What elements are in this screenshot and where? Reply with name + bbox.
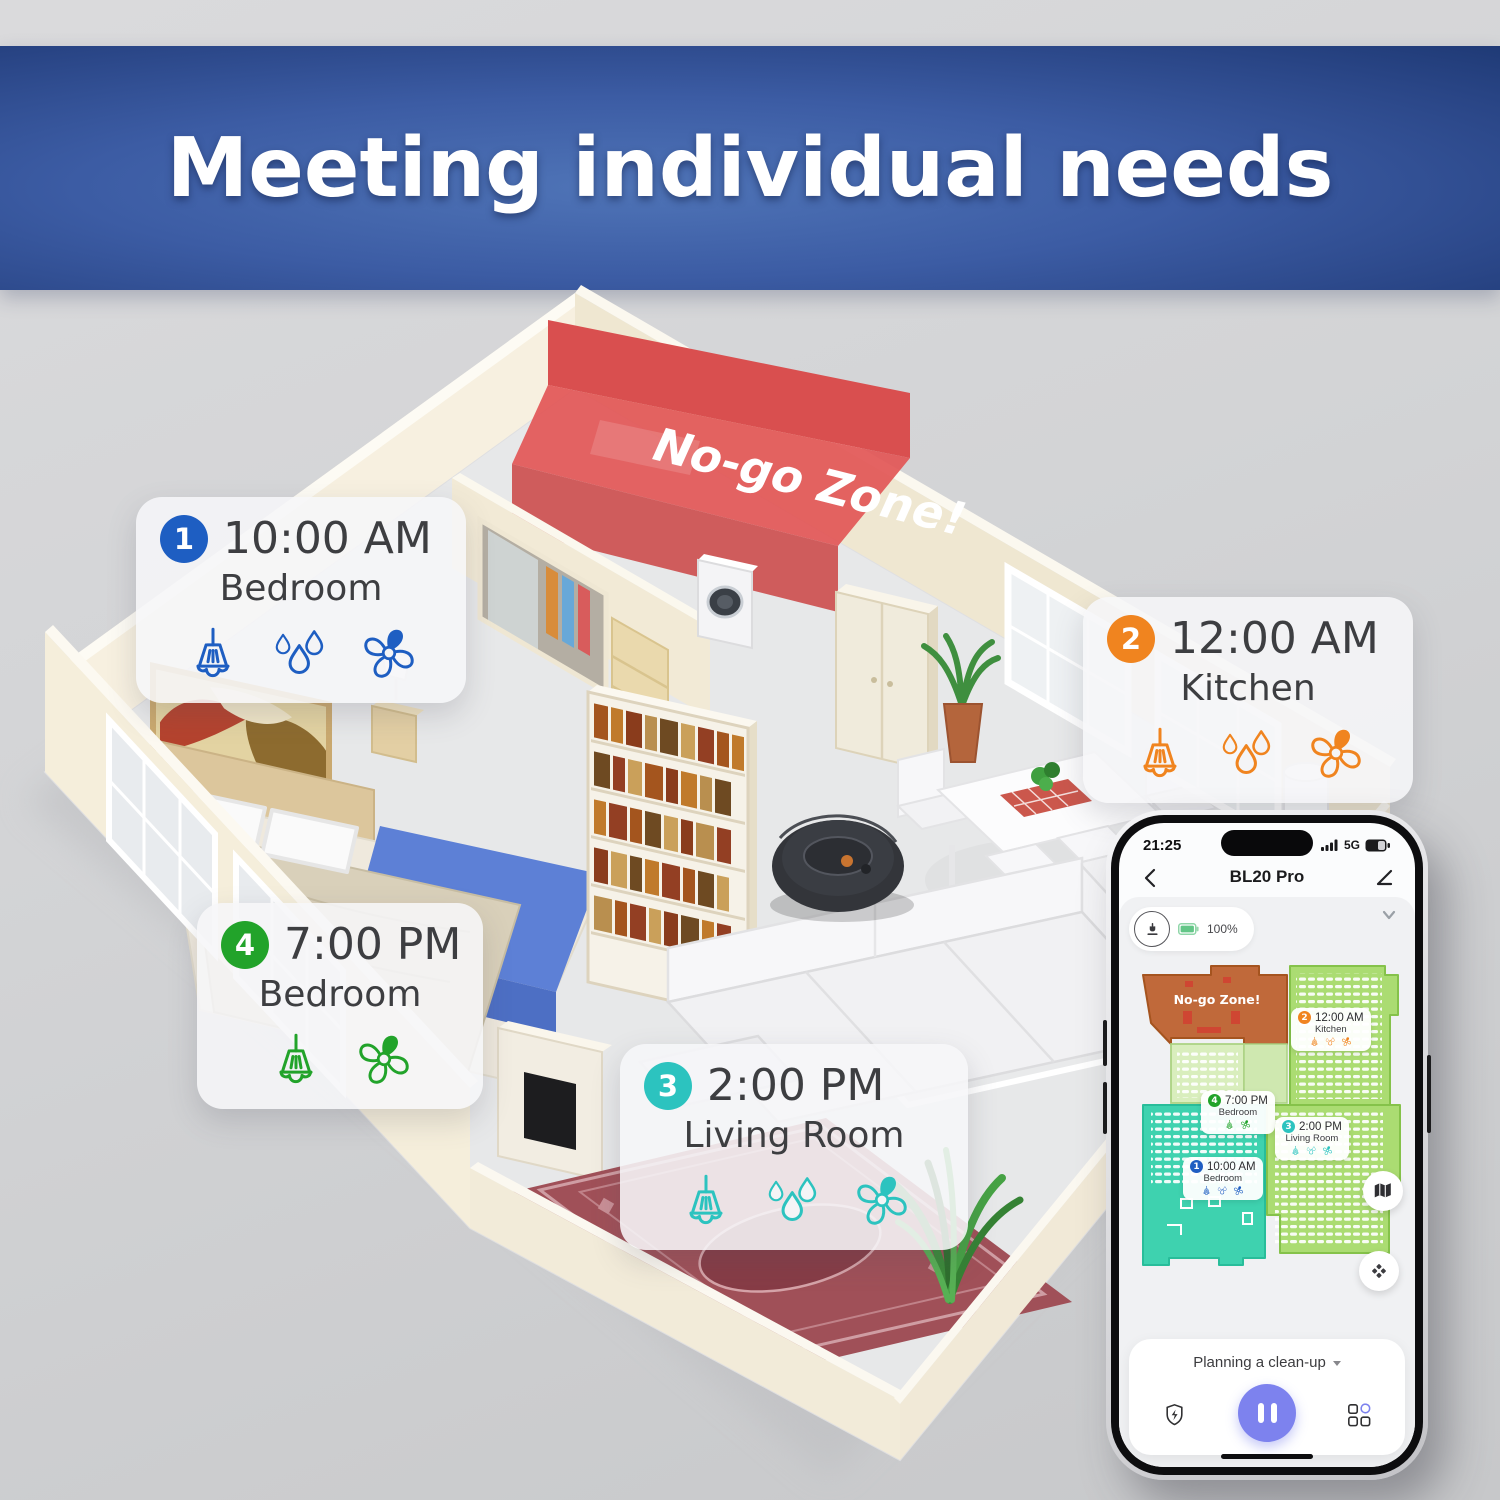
schedule-time: 2:00 PM — [707, 1060, 884, 1111]
map-label-bedroom-evening: 4 7:00 PM Bedroom — [1201, 1091, 1275, 1134]
water-drops-icon — [764, 1170, 824, 1230]
schedule-callout-1: 1 10:00 AM Bedroom — [136, 497, 466, 703]
battery-level-icon — [1178, 923, 1199, 935]
map-label-living-room: 3 2:00 PM Living Room — [1275, 1117, 1349, 1160]
shield-icon[interactable] — [1161, 1402, 1188, 1429]
cleaning-status-label: Planning a clean-up — [1193, 1354, 1326, 1371]
map-label-number: 1 — [1190, 1160, 1203, 1173]
schedule-number-badge: 4 — [221, 921, 269, 969]
broom-icon — [1201, 1185, 1212, 1196]
phone-screen: 21:25 5G — [1119, 823, 1415, 1467]
fan-icon — [852, 1170, 912, 1230]
fan-icon — [1240, 1119, 1251, 1130]
schedule-room: Bedroom — [160, 568, 442, 609]
map-view-button[interactable] — [1363, 1171, 1403, 1211]
schedule-room: Kitchen — [1107, 668, 1389, 709]
pause-icon — [1271, 1403, 1277, 1423]
water-drops-icon — [1325, 1036, 1336, 1047]
volume-down-button — [1103, 1082, 1107, 1134]
map-label-room: Bedroom — [1190, 1173, 1256, 1184]
app-header: BL20 Pro — [1119, 863, 1415, 893]
map-no-go-room: No-go Zone! — [1143, 966, 1287, 1044]
schedule-number-badge: 1 — [160, 515, 208, 563]
room-select-button[interactable] — [1359, 1251, 1399, 1291]
caret-down-icon — [1333, 1361, 1341, 1366]
dynamic-island — [1221, 830, 1313, 856]
schedule-time: 7:00 PM — [284, 919, 461, 970]
schedule-number-badge: 3 — [644, 1062, 692, 1110]
power-button — [1427, 1055, 1431, 1133]
broom-icon — [1224, 1119, 1235, 1130]
robot-avatar-icon — [1134, 911, 1170, 947]
fan-icon — [1322, 1145, 1333, 1156]
schedule-callout-4: 4 7:00 PM Bedroom — [197, 903, 483, 1109]
map-label-time: 12:00 AM — [1315, 1012, 1364, 1024]
signal-bars-icon — [1321, 839, 1339, 851]
schedule-callout-2: 2 12:00 AM Kitchen — [1083, 597, 1413, 803]
fan-icon — [1341, 1036, 1352, 1047]
battery-icon — [1365, 839, 1391, 852]
control-panel: Planning a clean-up — [1129, 1339, 1405, 1455]
water-drops-icon — [271, 623, 331, 683]
map-area[interactable]: No-go Zone! — [1127, 953, 1407, 1343]
map-label-number: 4 — [1208, 1094, 1221, 1107]
schedule-room: Living Room — [644, 1115, 944, 1156]
map-label-number: 2 — [1298, 1011, 1311, 1024]
broom-icon — [1130, 723, 1190, 783]
volume-up-button — [1103, 1020, 1107, 1066]
fireplace — [498, 1021, 612, 1180]
battery-percent: 100% — [1207, 922, 1238, 936]
map-label-time: 10:00 AM — [1207, 1161, 1256, 1173]
schedule-room: Bedroom — [221, 974, 459, 1015]
broom-icon — [266, 1029, 326, 1089]
cleaning-status-dropdown[interactable]: Planning a clean-up — [1129, 1339, 1405, 1371]
map-label-room: Kitchen — [1298, 1024, 1364, 1035]
fan-icon — [354, 1029, 414, 1089]
broom-icon — [676, 1170, 736, 1230]
water-drops-icon — [1306, 1145, 1317, 1156]
washing-machine — [698, 554, 758, 648]
map-label-kitchen: 2 12:00 AM Kitchen — [1291, 1008, 1371, 1051]
schedule-time: 12:00 AM — [1170, 613, 1379, 664]
app-content: 100% — [1119, 897, 1415, 1467]
water-drops-icon — [1217, 1185, 1228, 1196]
water-drops-icon — [1218, 723, 1278, 783]
network-label: 5G — [1344, 838, 1360, 852]
map-label-number: 3 — [1282, 1120, 1295, 1133]
schedule-number-badge: 2 — [1107, 615, 1155, 663]
fan-icon — [1306, 723, 1366, 783]
phone-mockup: 21:25 5G — [1106, 810, 1428, 1480]
broom-icon — [183, 623, 243, 683]
map-label-room: Bedroom — [1208, 1107, 1268, 1118]
robot-status-pill[interactable]: 100% — [1129, 907, 1254, 951]
status-time: 21:25 — [1143, 837, 1181, 854]
broom-icon — [1290, 1145, 1301, 1156]
fan-icon — [359, 623, 419, 683]
schedule-callout-3: 3 2:00 PM Living Room — [620, 1044, 968, 1250]
wardrobe — [836, 584, 938, 770]
broom-icon — [1309, 1036, 1320, 1047]
page: Meeting individual needs No-go Zone! — [0, 0, 1500, 1500]
collapse-chevron-icon[interactable] — [1379, 905, 1399, 925]
map-label-time: 7:00 PM — [1225, 1095, 1268, 1107]
map-label-bedroom-morning: 1 10:00 AM Bedroom — [1183, 1157, 1263, 1200]
map-icon — [1372, 1180, 1394, 1202]
pause-button[interactable] — [1238, 1384, 1296, 1442]
map-label-time: 2:00 PM — [1299, 1121, 1342, 1133]
schedule-time: 10:00 AM — [223, 513, 432, 564]
map-no-go-label: No-go Zone! — [1174, 992, 1261, 1007]
grid-icon[interactable] — [1346, 1402, 1373, 1429]
map-label-room: Living Room — [1282, 1133, 1342, 1144]
pause-icon — [1258, 1403, 1264, 1423]
edit-icon[interactable] — [1371, 866, 1395, 890]
fan-icon — [1233, 1185, 1244, 1196]
diamonds-icon — [1368, 1260, 1390, 1282]
home-indicator[interactable] — [1221, 1454, 1313, 1459]
